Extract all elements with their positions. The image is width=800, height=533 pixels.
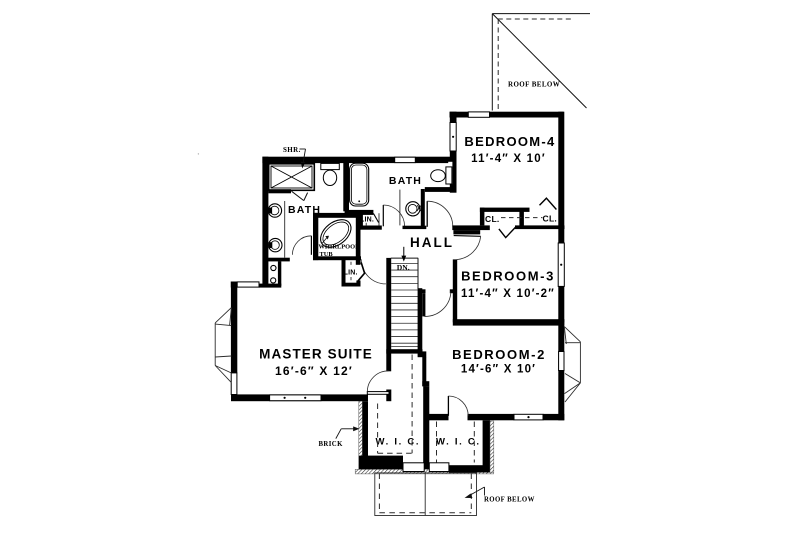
svg-text:ROOF BELOW: ROOF BELOW [484,497,535,504]
svg-text:WHIRLPOOL: WHIRLPOOL [319,244,360,251]
svg-text:ROOF BELOW: ROOF BELOW [508,81,560,89]
svg-text:DN.: DN. [397,263,410,272]
svg-text:BATH: BATH [288,204,321,216]
svg-text:CL.: CL. [485,214,500,224]
svg-text:LIN.: LIN. [344,270,358,277]
svg-text:SHR.: SHR. [283,146,301,154]
svg-text:MASTER SUITE: MASTER SUITE [259,347,373,362]
svg-text:11′-4″ X 10′-2″: 11′-4″ X 10′-2″ [461,288,555,300]
svg-text:TUB: TUB [320,251,334,258]
svg-text:BRICK: BRICK [319,441,344,448]
svg-text:LIN.: LIN. [360,216,374,223]
svg-text:BEDROOM-3: BEDROOM-3 [461,269,555,284]
svg-text:CL.: CL. [543,214,558,224]
svg-text:BEDROOM-2: BEDROOM-2 [452,347,546,362]
svg-text:BEDROOM-4: BEDROOM-4 [464,134,555,149]
svg-text:16′-6″ X 12′: 16′-6″ X 12′ [275,364,353,378]
svg-text:14′-6″ X 10′: 14′-6″ X 10′ [461,364,536,376]
svg-text:W. I. C.: W. I. C. [376,437,421,448]
svg-text:HALL: HALL [410,235,454,250]
svg-text:BATH: BATH [389,175,422,187]
svg-text:11′-4″ X 10′: 11′-4″ X 10′ [471,153,546,165]
